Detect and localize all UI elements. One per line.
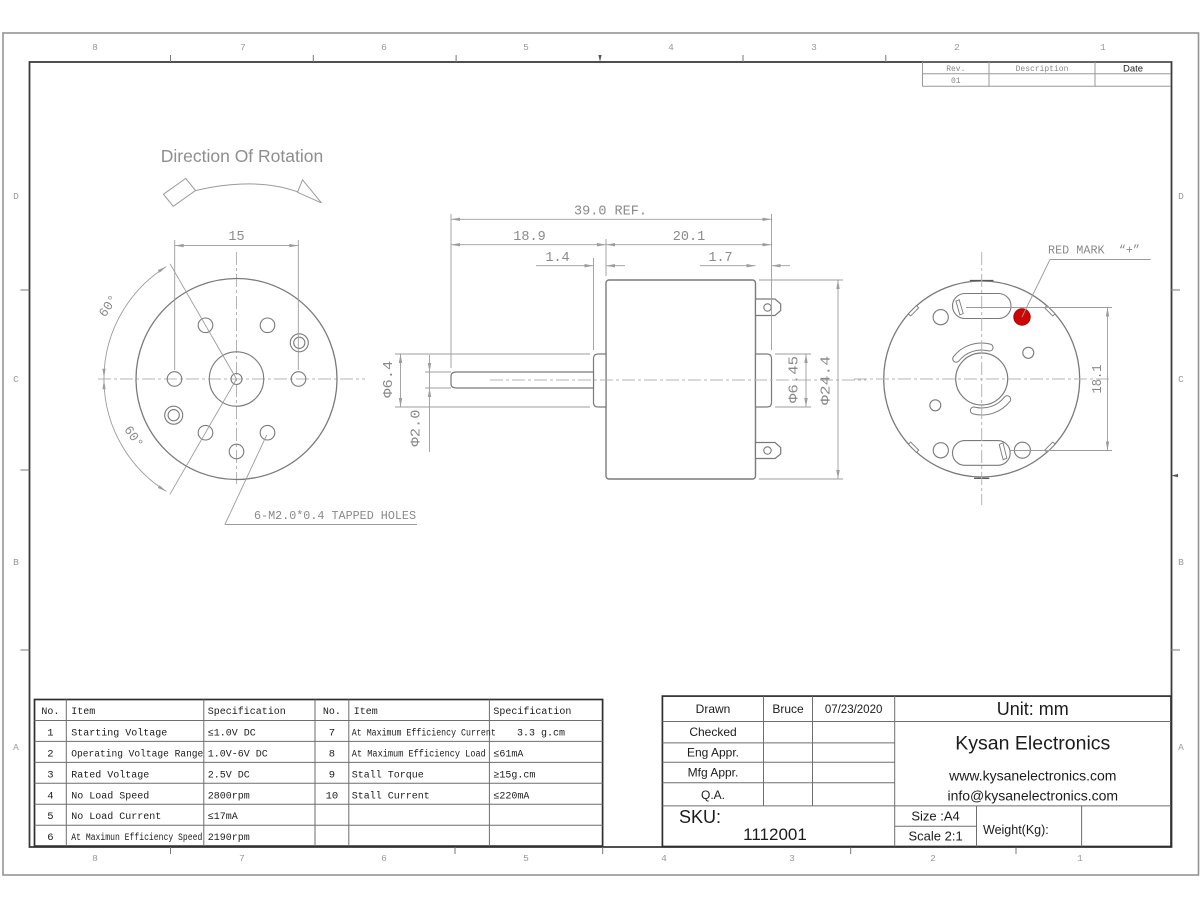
svg-text:Rated Voltage: Rated Voltage: [71, 769, 149, 781]
svg-text:9: 9: [329, 769, 335, 781]
svg-text:Φ2.0: Φ2.0: [410, 410, 425, 447]
svg-text:60°: 60°: [121, 423, 147, 451]
svg-text:Date: Date: [1123, 64, 1143, 75]
svg-text:B: B: [13, 557, 19, 568]
svg-text:≤17mA: ≤17mA: [208, 812, 238, 823]
svg-text:At Maximum Efficiency Current: At Maximum Efficiency Current: [352, 728, 496, 740]
svg-text:www.kysanelectronics.com: www.kysanelectronics.com: [948, 768, 1116, 784]
svg-text:Bruce: Bruce: [772, 702, 804, 716]
svg-text:Item: Item: [71, 707, 95, 718]
svg-text:Description: Description: [1016, 65, 1069, 74]
svg-text:4: 4: [47, 790, 53, 802]
svg-text:Item: Item: [354, 707, 378, 718]
svg-text:5: 5: [523, 42, 529, 53]
svg-text:1: 1: [1100, 42, 1106, 53]
svg-text:A: A: [1178, 742, 1184, 753]
svg-text:5: 5: [523, 853, 529, 864]
svg-text:01: 01: [951, 77, 961, 86]
svg-text:1.4: 1.4: [545, 251, 569, 266]
svg-text:A: A: [13, 742, 19, 753]
svg-text:6: 6: [47, 832, 53, 844]
svg-text:D: D: [13, 191, 19, 202]
svg-text:1.0V-6V DC: 1.0V-6V DC: [208, 749, 268, 760]
svg-text:60°: 60°: [96, 292, 121, 320]
svg-text:No Load Current: No Load Current: [71, 811, 161, 823]
svg-text:3: 3: [47, 769, 53, 781]
svg-text:3: 3: [789, 853, 795, 864]
svg-text:≤220mA: ≤220mA: [493, 791, 529, 802]
svg-text:1.7: 1.7: [708, 251, 732, 266]
svg-text:8: 8: [92, 853, 98, 864]
svg-text:≤1.0V DC: ≤1.0V DC: [208, 729, 256, 740]
svg-text:At Maximum Efficiency Load: At Maximum Efficiency Load: [352, 748, 486, 760]
svg-text:7: 7: [239, 853, 245, 864]
svg-text:1: 1: [47, 728, 53, 740]
svg-text:Size :A4: Size :A4: [911, 809, 959, 824]
svg-text:1: 1: [1077, 853, 1083, 864]
svg-text:4: 4: [661, 853, 667, 864]
svg-text:1112001: 1112001: [743, 825, 807, 844]
svg-text:Checked: Checked: [689, 725, 736, 739]
svg-text:RED MARK “+”: RED MARK “+”: [1048, 244, 1140, 258]
svg-text:≤61mA: ≤61mA: [493, 749, 523, 760]
svg-text:Starting Voltage: Starting Voltage: [71, 728, 167, 740]
svg-text:3: 3: [811, 42, 817, 53]
svg-text:10: 10: [326, 790, 339, 802]
svg-text:Scale 2:1: Scale 2:1: [908, 829, 962, 844]
svg-text:2.5V DC: 2.5V DC: [208, 770, 250, 781]
svg-text:7: 7: [329, 728, 335, 740]
svg-text:No.: No.: [323, 707, 341, 718]
svg-text:Specification: Specification: [493, 706, 571, 718]
svg-text:07/23/2020: 07/23/2020: [825, 704, 883, 716]
svg-text:Mfg Appr.: Mfg Appr.: [688, 766, 739, 780]
svg-text:39.0 REF.: 39.0 REF.: [574, 205, 647, 220]
svg-text:SKU:: SKU:: [679, 807, 721, 827]
svg-text:4: 4: [668, 42, 674, 53]
svg-text:≥15g.cm: ≥15g.cm: [493, 770, 535, 781]
svg-text:At Maximun Efficiency Speed: At Maximun Efficiency Speed: [71, 832, 202, 844]
svg-text:Φ24.4: Φ24.4: [820, 356, 835, 405]
svg-text:Operating Voltage Range: Operating Voltage Range: [71, 748, 203, 760]
svg-text:Φ6.4: Φ6.4: [382, 361, 397, 398]
svg-text:Specification: Specification: [208, 706, 286, 718]
svg-text:18.9: 18.9: [513, 230, 545, 245]
svg-text:5: 5: [47, 811, 53, 823]
svg-text:C: C: [1178, 374, 1184, 385]
svg-text:6: 6: [381, 853, 387, 864]
svg-text:C: C: [13, 374, 19, 385]
svg-text:15: 15: [228, 230, 244, 245]
svg-text:No.: No.: [41, 707, 59, 718]
svg-text:info@kysanelectronics.com: info@kysanelectronics.com: [947, 788, 1118, 804]
svg-text:Kysan Electronics: Kysan Electronics: [955, 733, 1110, 755]
svg-text:D: D: [1178, 191, 1184, 202]
svg-text:B: B: [1178, 557, 1184, 568]
svg-text:6: 6: [381, 42, 387, 53]
svg-text:Φ6.45: Φ6.45: [788, 356, 803, 403]
svg-text:Stall Torque: Stall Torque: [352, 769, 424, 781]
svg-text:Direction Of Rotation: Direction Of Rotation: [161, 146, 323, 166]
svg-text:2: 2: [930, 853, 936, 864]
svg-text:8: 8: [329, 748, 335, 760]
svg-text:Rev.: Rev.: [946, 65, 965, 74]
svg-text:7: 7: [240, 42, 246, 53]
svg-text:Stall Current: Stall Current: [352, 790, 430, 802]
svg-text:Weight(Kg):: Weight(Kg):: [983, 823, 1049, 837]
svg-text:18.1: 18.1: [1091, 365, 1106, 394]
svg-text:Eng Appr.: Eng Appr.: [687, 746, 739, 760]
svg-text:Drawn: Drawn: [696, 702, 731, 716]
svg-text:Q.A.: Q.A.: [701, 788, 725, 802]
svg-text:2: 2: [47, 748, 53, 760]
svg-text:Unit: mm: Unit: mm: [997, 699, 1069, 719]
svg-text:3.3 g.cm: 3.3 g.cm: [517, 729, 565, 740]
svg-text:2800rpm: 2800rpm: [208, 791, 250, 802]
svg-text:8: 8: [92, 42, 98, 53]
svg-text:20.1: 20.1: [673, 230, 705, 245]
svg-text:2: 2: [954, 42, 960, 53]
svg-text:No Load Speed: No Load Speed: [71, 790, 149, 802]
svg-text:6-M2.0*0.4 TAPPED HOLES: 6-M2.0*0.4 TAPPED HOLES: [254, 509, 416, 523]
svg-text:2190rpm: 2190rpm: [208, 833, 250, 844]
